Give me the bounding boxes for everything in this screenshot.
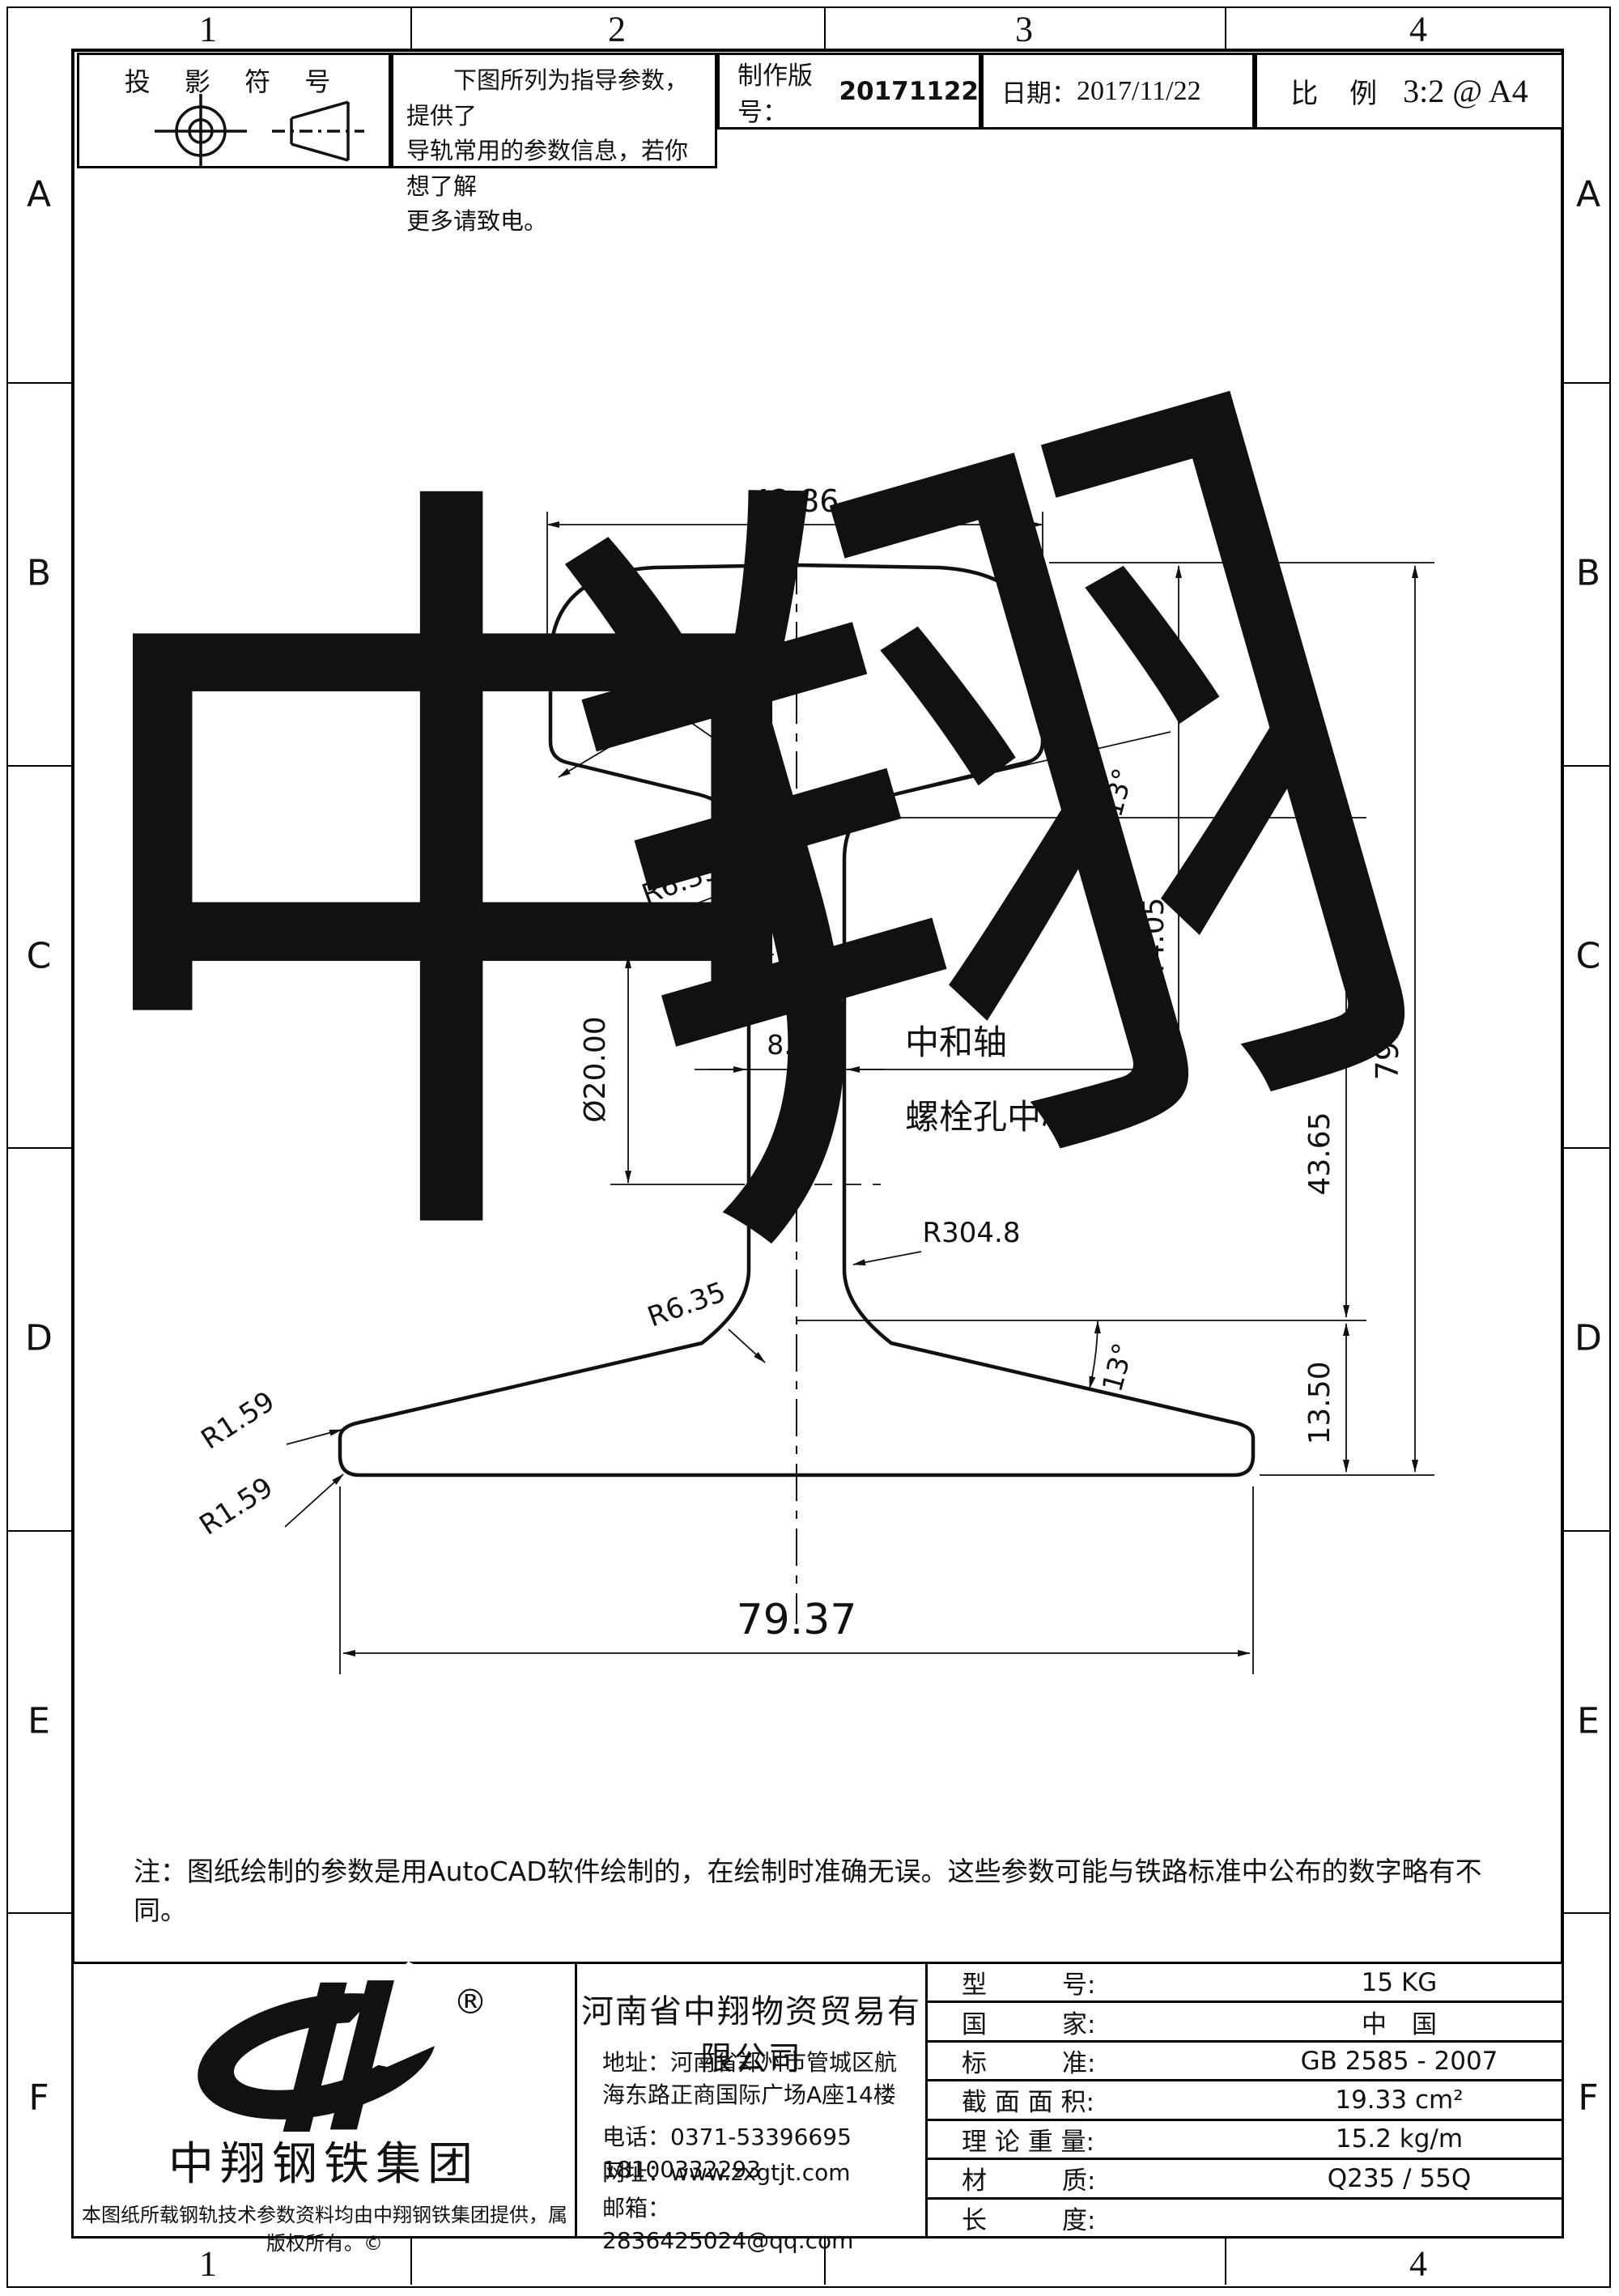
dim-head-width: 42.86 xyxy=(751,483,839,519)
spec-row-section-area: 截 面 面 积: 19.33 cm² xyxy=(928,2081,1562,2120)
spec-row-theoretical-weight: 理 论 重 量: 15.2 kg/m xyxy=(928,2121,1562,2160)
dim-r-web-side: R304.8 xyxy=(923,1217,1021,1249)
spec-value: 15.2 kg/m xyxy=(1237,2124,1562,2154)
drawing-note: 注：图纸绘制的参数是用AutoCAD软件绘制的，在绘制时准确无误。这些参数可能与… xyxy=(134,1850,1526,1928)
company-address: 地址：河南省郑州市管城区航海东路正商国际广场A座14楼 xyxy=(602,2047,914,2111)
watermark: 中 翔 xyxy=(57,273,1508,1380)
rail-section-drawing: 中 翔 xyxy=(0,0,1619,2296)
spec-value: GB 2585 - 2007 xyxy=(1237,2047,1562,2076)
dim-top-to-neutral: 44.05 xyxy=(1137,897,1171,980)
spec-label: 型 号: xyxy=(928,1964,1237,2000)
brand-name: 中翔钢铁集团 xyxy=(89,2128,559,2193)
spec-label: 国 家: xyxy=(928,2004,1237,2040)
label-neutral-axis: 中和轴 xyxy=(905,1023,1007,1062)
dim-web-zone: 43.65 xyxy=(1303,1112,1336,1195)
company-email: 邮箱：2836425024@qq.com xyxy=(602,2192,914,2257)
spec-label: 理 论 重 量: xyxy=(928,2121,1237,2158)
drawing-sheet: 1 2 3 4 1 4 A B C D E F A B C D E F 投 影 … xyxy=(0,0,1619,2296)
spec-row-material: 材 质: Q235 / 55Q xyxy=(928,2160,1562,2199)
spec-row-model: 型 号: 15 KG xyxy=(928,1964,1562,2003)
dim-foot-width: 79.37 xyxy=(737,1596,857,1644)
spec-table: 型 号: 15 KG 国 家: 中 国 标 准: GB 2585 - 2007 … xyxy=(928,1964,1562,2236)
dim-web-thickness: 8.33 xyxy=(767,1029,826,1061)
copyright-text: 本图纸所载钢轨技术参数资料均由中翔钢铁集团提供，属版权所有。© xyxy=(79,2199,570,2256)
company-website: 网址：www.zxgtjt.com xyxy=(602,2157,914,2189)
spec-value: 19.33 cm² xyxy=(1237,2086,1562,2115)
registered-mark: ® xyxy=(453,1982,487,2022)
spec-label: 标 准: xyxy=(928,2043,1237,2079)
dim-foot-zone: 13.50 xyxy=(1303,1361,1336,1444)
dim-hole-dia: Ø20.00 xyxy=(579,1016,612,1122)
dim-r-foot-top: R1.59 xyxy=(195,1385,280,1456)
spec-value: 中 国 xyxy=(1237,2004,1562,2040)
title-block-divider xyxy=(575,1962,577,2239)
dim-r-foot-bottom: R1.59 xyxy=(193,1471,278,1542)
spec-row-standard: 标 准: GB 2585 - 2007 xyxy=(928,2043,1562,2081)
company-logo xyxy=(174,1975,474,2137)
spec-label: 长 度: xyxy=(928,2200,1237,2236)
spec-row-country: 国 家: 中 国 xyxy=(928,2003,1562,2042)
spec-value: Q235 / 55Q xyxy=(1237,2164,1562,2193)
spec-label: 截 面 面 积: xyxy=(928,2081,1237,2118)
spec-label: 材 质: xyxy=(928,2160,1237,2196)
dim-angle-foot: 13° xyxy=(1096,1340,1140,1396)
label-bolt-centerline: 螺栓孔中心线 xyxy=(905,1097,1109,1137)
dim-total-height: 79.37 xyxy=(1370,993,1405,1081)
spec-value: 15 KG xyxy=(1237,1968,1562,1997)
spec-row-length: 长 度: xyxy=(928,2200,1562,2236)
